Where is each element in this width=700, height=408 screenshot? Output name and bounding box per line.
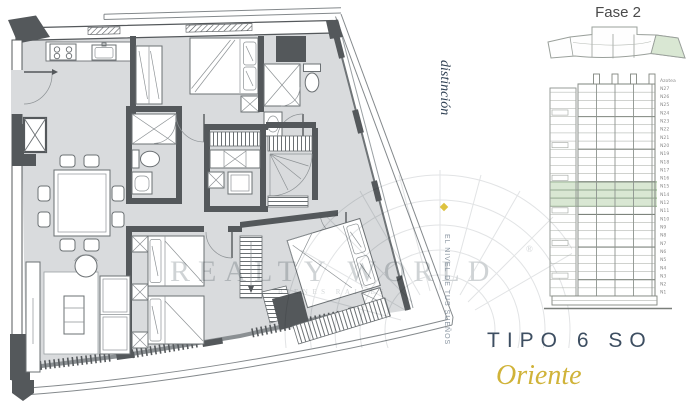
toilet bbox=[304, 64, 321, 72]
brand-distincion-text: distinción bbox=[436, 60, 452, 115]
floor-label: N10 bbox=[660, 216, 669, 222]
floor-label: N27 bbox=[660, 86, 669, 92]
floor-label: N19 bbox=[660, 151, 669, 157]
sofa bbox=[100, 276, 130, 354]
floor-label: Azotea bbox=[660, 78, 676, 84]
kitchen bbox=[46, 42, 132, 61]
dining-table bbox=[54, 170, 110, 236]
chair bbox=[84, 239, 99, 251]
floor-label: N15 bbox=[660, 184, 669, 190]
floor-label: N5 bbox=[660, 257, 666, 263]
floor-label: N12 bbox=[660, 200, 669, 206]
watermark-reg: ® bbox=[526, 244, 533, 254]
floor-label: N11 bbox=[660, 208, 669, 214]
coffee-table bbox=[64, 296, 84, 334]
floor-label: N21 bbox=[660, 135, 669, 141]
floor-label: N20 bbox=[660, 143, 669, 149]
watermark-tagline: BIENES RAICES bbox=[278, 288, 388, 296]
orientation-label: Oriente bbox=[496, 360, 582, 392]
twin-bed bbox=[148, 296, 204, 344]
chair bbox=[38, 212, 50, 227]
floor-label: N25 bbox=[660, 102, 669, 108]
closet-rod bbox=[210, 132, 260, 146]
service-shaft bbox=[276, 36, 306, 62]
floor-label: N23 bbox=[660, 118, 669, 124]
floor-label: N1 bbox=[660, 290, 666, 296]
floor-label: N26 bbox=[660, 94, 669, 100]
armchair bbox=[75, 255, 97, 277]
chair bbox=[60, 155, 75, 167]
listing-floorplan-page: REALTY WORLD ® BIENES RAICES distinción … bbox=[0, 0, 700, 408]
floor-label: N9 bbox=[660, 224, 666, 230]
brand-slogan-text: EL NIVEL DE TUS SUEÑOS bbox=[443, 234, 450, 345]
floor-label: N3 bbox=[660, 273, 666, 279]
elevator-shaft bbox=[24, 118, 46, 152]
floor-label: N6 bbox=[660, 249, 666, 255]
floor-label: N4 bbox=[660, 265, 666, 271]
chair bbox=[60, 239, 75, 251]
floor-label: N8 bbox=[660, 233, 666, 239]
building-elevation-diagram: AzoteaN27N26N25N24N23N22N21N20N19N18N17N… bbox=[544, 70, 700, 320]
highlighted-unit-position bbox=[651, 35, 685, 58]
floor-label: N24 bbox=[660, 110, 669, 116]
floor-label: N2 bbox=[660, 282, 666, 288]
chair bbox=[112, 212, 124, 227]
floor-label: N7 bbox=[660, 241, 666, 247]
floor-label: N16 bbox=[660, 176, 669, 182]
phase-title: Fase 2 bbox=[538, 4, 698, 21]
floor-label: N18 bbox=[660, 159, 669, 165]
unit-type-label: TIPO 6 SO bbox=[487, 329, 653, 353]
floor-label: N22 bbox=[660, 127, 669, 133]
floor-label: N17 bbox=[660, 167, 669, 173]
chair bbox=[112, 186, 124, 201]
building-footprint-diagram bbox=[538, 22, 698, 70]
chair bbox=[84, 155, 99, 167]
chair bbox=[38, 186, 50, 201]
floor-label: N14 bbox=[660, 192, 669, 198]
toilet bbox=[132, 150, 139, 168]
